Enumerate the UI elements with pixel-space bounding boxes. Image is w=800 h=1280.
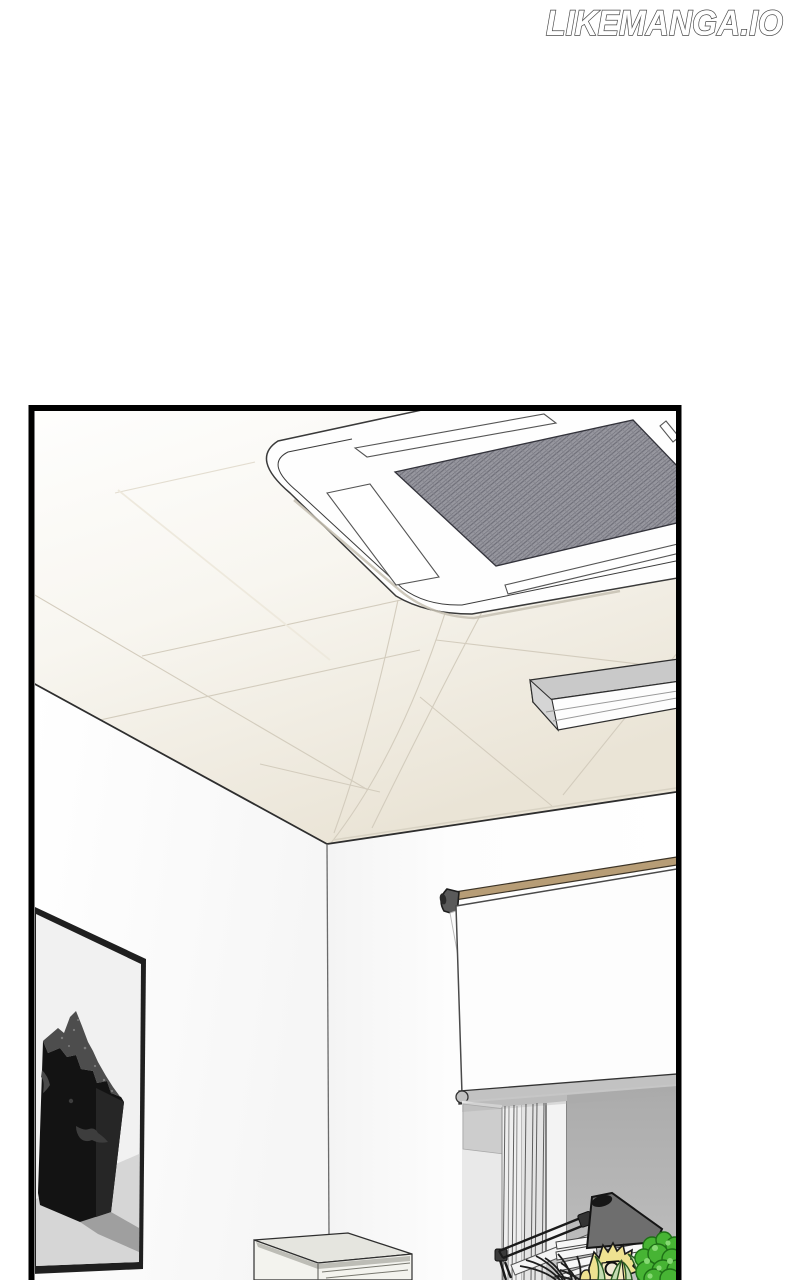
svg-text:LIKEMANGA.IO: LIKEMANGA.IO — [546, 4, 783, 43]
